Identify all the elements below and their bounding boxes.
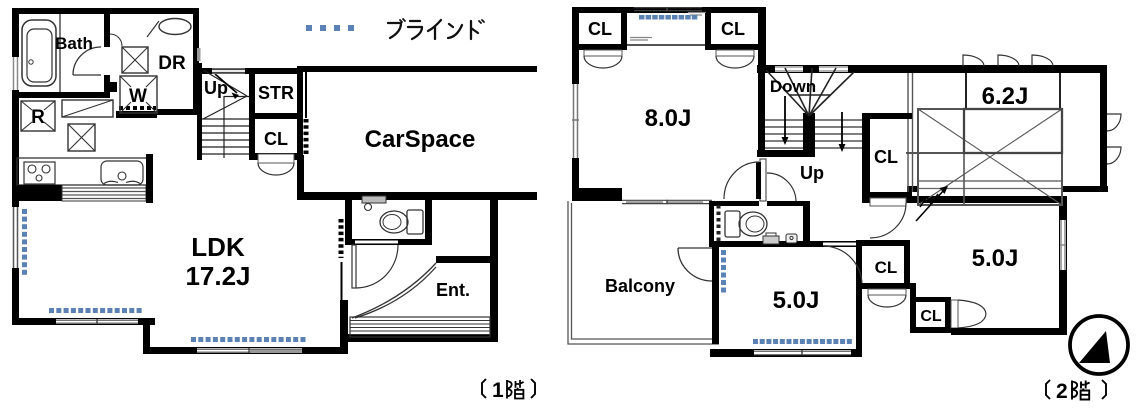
- svg-text:Up: Up: [800, 163, 824, 183]
- svg-text:LDK: LDK: [191, 232, 245, 262]
- svg-text:Bath: Bath: [55, 34, 93, 53]
- svg-text:6.2J: 6.2J: [982, 83, 1029, 110]
- svg-text:Balcony: Balcony: [605, 276, 675, 296]
- svg-text:R: R: [31, 107, 45, 128]
- svg-text:CarSpace: CarSpace: [365, 126, 476, 153]
- svg-text:17.2J: 17.2J: [185, 261, 250, 291]
- svg-text:CL: CL: [875, 258, 898, 277]
- svg-text:Up: Up: [204, 78, 228, 98]
- svg-text:CL: CL: [920, 308, 942, 325]
- svg-text:5.0J: 5.0J: [972, 245, 1019, 272]
- svg-text:2: 2: [1056, 380, 1068, 403]
- svg-text:Ent.: Ent.: [436, 280, 470, 300]
- svg-text:1: 1: [492, 379, 504, 402]
- svg-text:DR: DR: [158, 53, 186, 74]
- svg-text:8.0J: 8.0J: [645, 105, 692, 132]
- svg-text:CL: CL: [721, 19, 745, 39]
- svg-text:CL: CL: [588, 19, 612, 39]
- svg-text:CL: CL: [874, 147, 898, 167]
- svg-text:5.0J: 5.0J: [773, 287, 820, 314]
- svg-text:W: W: [129, 86, 147, 107]
- svg-text:STR: STR: [258, 83, 294, 103]
- svg-text:CL: CL: [264, 129, 288, 149]
- svg-text:Down: Down: [770, 77, 816, 96]
